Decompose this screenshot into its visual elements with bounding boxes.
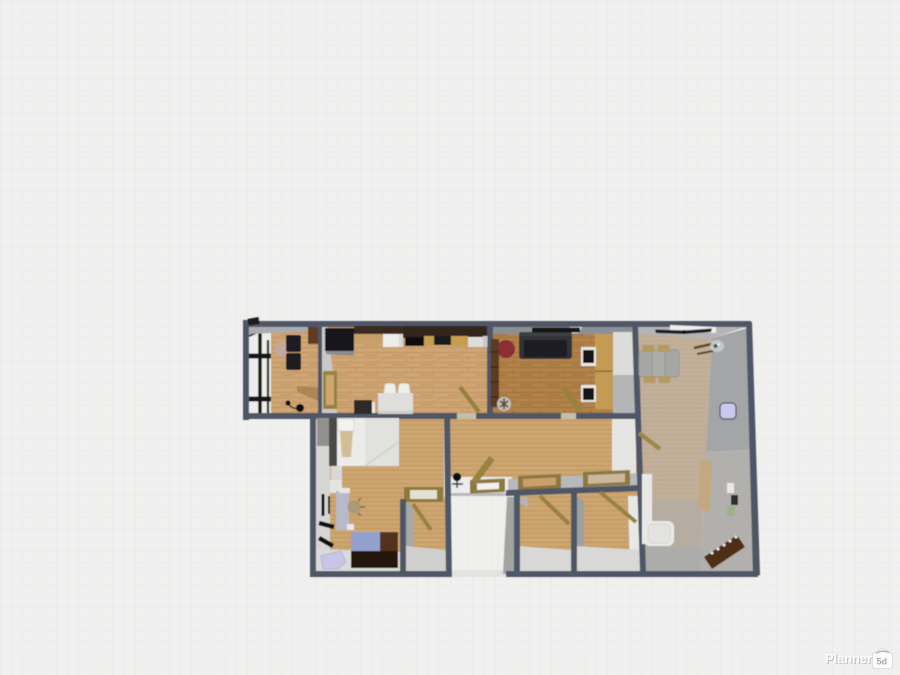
svg-text:5d: 5d (877, 657, 888, 667)
svg-text:Planner: Planner (825, 651, 872, 666)
